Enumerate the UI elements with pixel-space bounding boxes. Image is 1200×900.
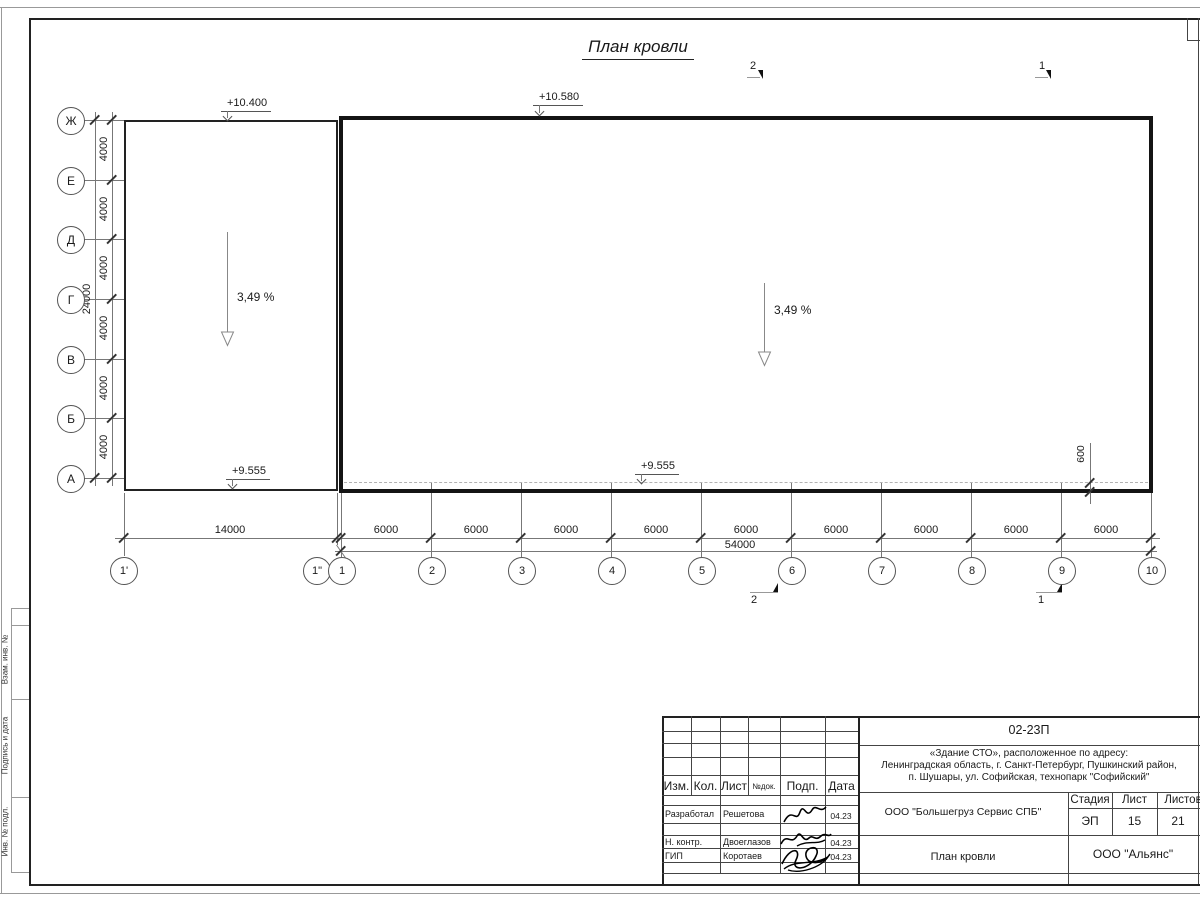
axis-circle-col: 5 (688, 557, 716, 585)
slope-arrow-line (764, 283, 765, 352)
dim-label-row-segment: 4000 (98, 306, 110, 350)
section-marker-number: 1 (1039, 60, 1045, 72)
section-marker-number: 2 (750, 60, 756, 72)
titleblock-header-cell: Изм. (662, 779, 691, 793)
dim-label-col-segment: 6000 (356, 524, 416, 536)
titleblock-header-cell: Дата (825, 779, 858, 793)
section-marker-number: 1 (1038, 594, 1044, 606)
titleblock-line (662, 805, 858, 806)
frame-left (29, 18, 31, 886)
dim-label-row-segment: 4000 (98, 246, 110, 290)
axis-circle-row: Е (57, 167, 85, 195)
dim-line-cols-total (335, 551, 1157, 552)
dim-label-col-segment: 6000 (1076, 524, 1136, 536)
section-marker-line (750, 592, 778, 593)
titleblock-line (662, 795, 858, 796)
section-flag-icon (773, 583, 778, 592)
titleblock-line (662, 716, 664, 884)
axis-circle-col: 9 (1048, 557, 1076, 585)
paper-edge-top (0, 7, 1200, 8)
axis-line-col (1151, 482, 1152, 557)
titleblock-name: Коротаев (723, 851, 762, 861)
margin-divider (11, 872, 29, 873)
paper-edge-bottom (0, 893, 1200, 894)
margin-label: Подпись и дата (1, 706, 10, 786)
axis-line-col (431, 482, 432, 557)
axis-line-col (971, 482, 972, 557)
elevation-label: +9.555 (226, 465, 270, 480)
dim-label-overhang: 600 (1075, 439, 1087, 469)
axis-line-row (84, 239, 124, 240)
dim-label-row-segment: 4000 (98, 425, 110, 469)
axis-circle-col: 1' (110, 557, 138, 585)
titleblock-line (720, 716, 721, 873)
dim-line-rows-total (95, 112, 96, 486)
titleblock-line (662, 716, 1200, 718)
slope-arrow-line (227, 232, 228, 332)
section-flag-icon (758, 70, 763, 79)
axis-circle-col: 2 (418, 557, 446, 585)
axis-circle-row: В (57, 346, 85, 374)
margin-label: Инв. № подл. (1, 792, 10, 872)
titleblock-line (662, 835, 1200, 836)
axis-line-col (881, 482, 882, 557)
axis-circle-row: Б (57, 405, 85, 433)
titleblock-sheet-label: Лист (1112, 794, 1157, 806)
axis-circle-col: 1" (303, 557, 331, 585)
titleblock-contractor: ООО "Альянс" (1068, 847, 1198, 861)
axis-line-row (84, 120, 124, 121)
titleblock-header-cell: №док. (748, 782, 780, 791)
titleblock-role: Разработал (665, 809, 714, 819)
corner-box-line-v (1187, 18, 1188, 40)
titleblock-header-cell: Кол. (691, 779, 720, 793)
roof-eaves-dashed-line (344, 482, 1148, 483)
dim-label-row-segment: 4000 (98, 127, 110, 171)
down-arrow-icon (535, 107, 545, 117)
axis-line-col (1061, 482, 1062, 557)
axis-line-col (341, 482, 342, 557)
axis-line-row (84, 478, 124, 479)
margin-label: Взам. инв. № (1, 620, 10, 700)
axis-line-col (124, 493, 125, 556)
titleblock-company: ООО "Большегруз Сервис СПБ" (860, 806, 1066, 818)
axis-circle-row: Г (57, 286, 85, 314)
titleblock-address-line: п. Шушары, ул. Софийская, технопарк "Соф… (860, 772, 1198, 783)
margin-divider (11, 608, 29, 609)
elevation-label: +10.400 (221, 97, 271, 112)
frame-right (1198, 18, 1199, 884)
dim-line-overhang (1090, 443, 1091, 504)
titleblock-line (662, 873, 1200, 874)
slope-label: 3,49 % (237, 290, 274, 304)
axis-circle-col: 10 (1138, 557, 1166, 585)
slope-arrowhead-icon (757, 351, 772, 367)
dim-label-row-segment: 4000 (98, 187, 110, 231)
dim-label-col-segment: 6000 (716, 524, 776, 536)
titleblock-doc-number: 02-23П (860, 723, 1198, 737)
section-marker-number: 2 (751, 594, 757, 606)
titleblock-stage-value: ЭП (1068, 814, 1112, 828)
frame-bottom (29, 884, 1200, 886)
dim-label-cols-total: 54000 (710, 539, 770, 551)
signature-icon (776, 836, 836, 874)
axis-line-col (791, 482, 792, 557)
titleblock-name: Двоеглазов (723, 837, 771, 847)
frame-top (29, 18, 1200, 20)
dim-label-col-segment: 6000 (446, 524, 506, 536)
axis-line-col (521, 482, 522, 557)
dim-label-col-segment: 6000 (896, 524, 956, 536)
section-flag-icon (1046, 70, 1051, 79)
titleblock-sheets-label: Листов (1157, 794, 1200, 806)
slope-arrowhead-icon (220, 331, 235, 347)
titleblock-line (858, 745, 1200, 746)
titleblock-line (1068, 808, 1200, 809)
axis-line-row (84, 180, 124, 181)
axis-circle-col: 1 (328, 557, 356, 585)
axis-circle-row: Д (57, 226, 85, 254)
dim-label-row-segment: 4000 (98, 366, 110, 410)
axis-line-col (701, 482, 702, 557)
axis-line-row (84, 359, 124, 360)
roof-outline-left-block (124, 120, 338, 491)
slope-label: 3,49 % (774, 303, 811, 317)
titleblock-stage-label: Стадия (1068, 794, 1112, 806)
titleblock-drawing-name: План кровли (860, 851, 1066, 863)
drawing-title: План кровли (582, 37, 694, 60)
titleblock-date: 04.23 (826, 811, 856, 821)
titleblock-address-line: Ленинградская область, г. Санкт-Петербур… (860, 760, 1198, 771)
roof-outline-right-block (339, 116, 1153, 493)
titleblock-sheet-value: 15 (1112, 814, 1157, 828)
drawing-sheet: Взам. инв. № Подпись и дата Инв. № подл.… (0, 0, 1200, 900)
dim-label-col-first: 14000 (200, 524, 260, 536)
elevation-label: +10.580 (533, 91, 583, 106)
titleblock-address-line: «Здание СТО», расположенное по адресу: (860, 748, 1198, 759)
axis-circle-col: 8 (958, 557, 986, 585)
corner-box-line-h (1187, 40, 1200, 41)
axis-line-col (611, 482, 612, 557)
margin-divider (11, 699, 29, 700)
dim-label-col-segment: 6000 (986, 524, 1046, 536)
titleblock-header-cell: Лист (720, 779, 748, 793)
dim-label-col-segment: 6000 (626, 524, 686, 536)
dim-line-cols-segments (115, 538, 1160, 539)
dim-label-col-segment: 6000 (806, 524, 866, 536)
section-marker-line (1036, 592, 1062, 593)
titleblock-name: Решетова (723, 809, 764, 819)
elevation-label: +9.555 (635, 460, 679, 475)
titleblock-sheets-value: 21 (1157, 814, 1199, 828)
axis-circle-col: 4 (598, 557, 626, 585)
titleblock-line (858, 792, 1200, 793)
axis-circle-col: 6 (778, 557, 806, 585)
axis-circle-col: 7 (868, 557, 896, 585)
axis-circle-row: А (57, 465, 85, 493)
axis-circle-row: Ж (57, 107, 85, 135)
margin-divider (11, 797, 29, 798)
axis-line-row (84, 418, 124, 419)
titleblock-role: ГИП (665, 851, 683, 861)
margin-column-line (11, 608, 12, 872)
titleblock-role: Н. контр. (665, 837, 702, 847)
titleblock-header-cell: Подп. (780, 779, 825, 793)
margin-divider (11, 625, 29, 626)
axis-circle-col: 3 (508, 557, 536, 585)
dim-label-col-segment: 6000 (536, 524, 596, 536)
